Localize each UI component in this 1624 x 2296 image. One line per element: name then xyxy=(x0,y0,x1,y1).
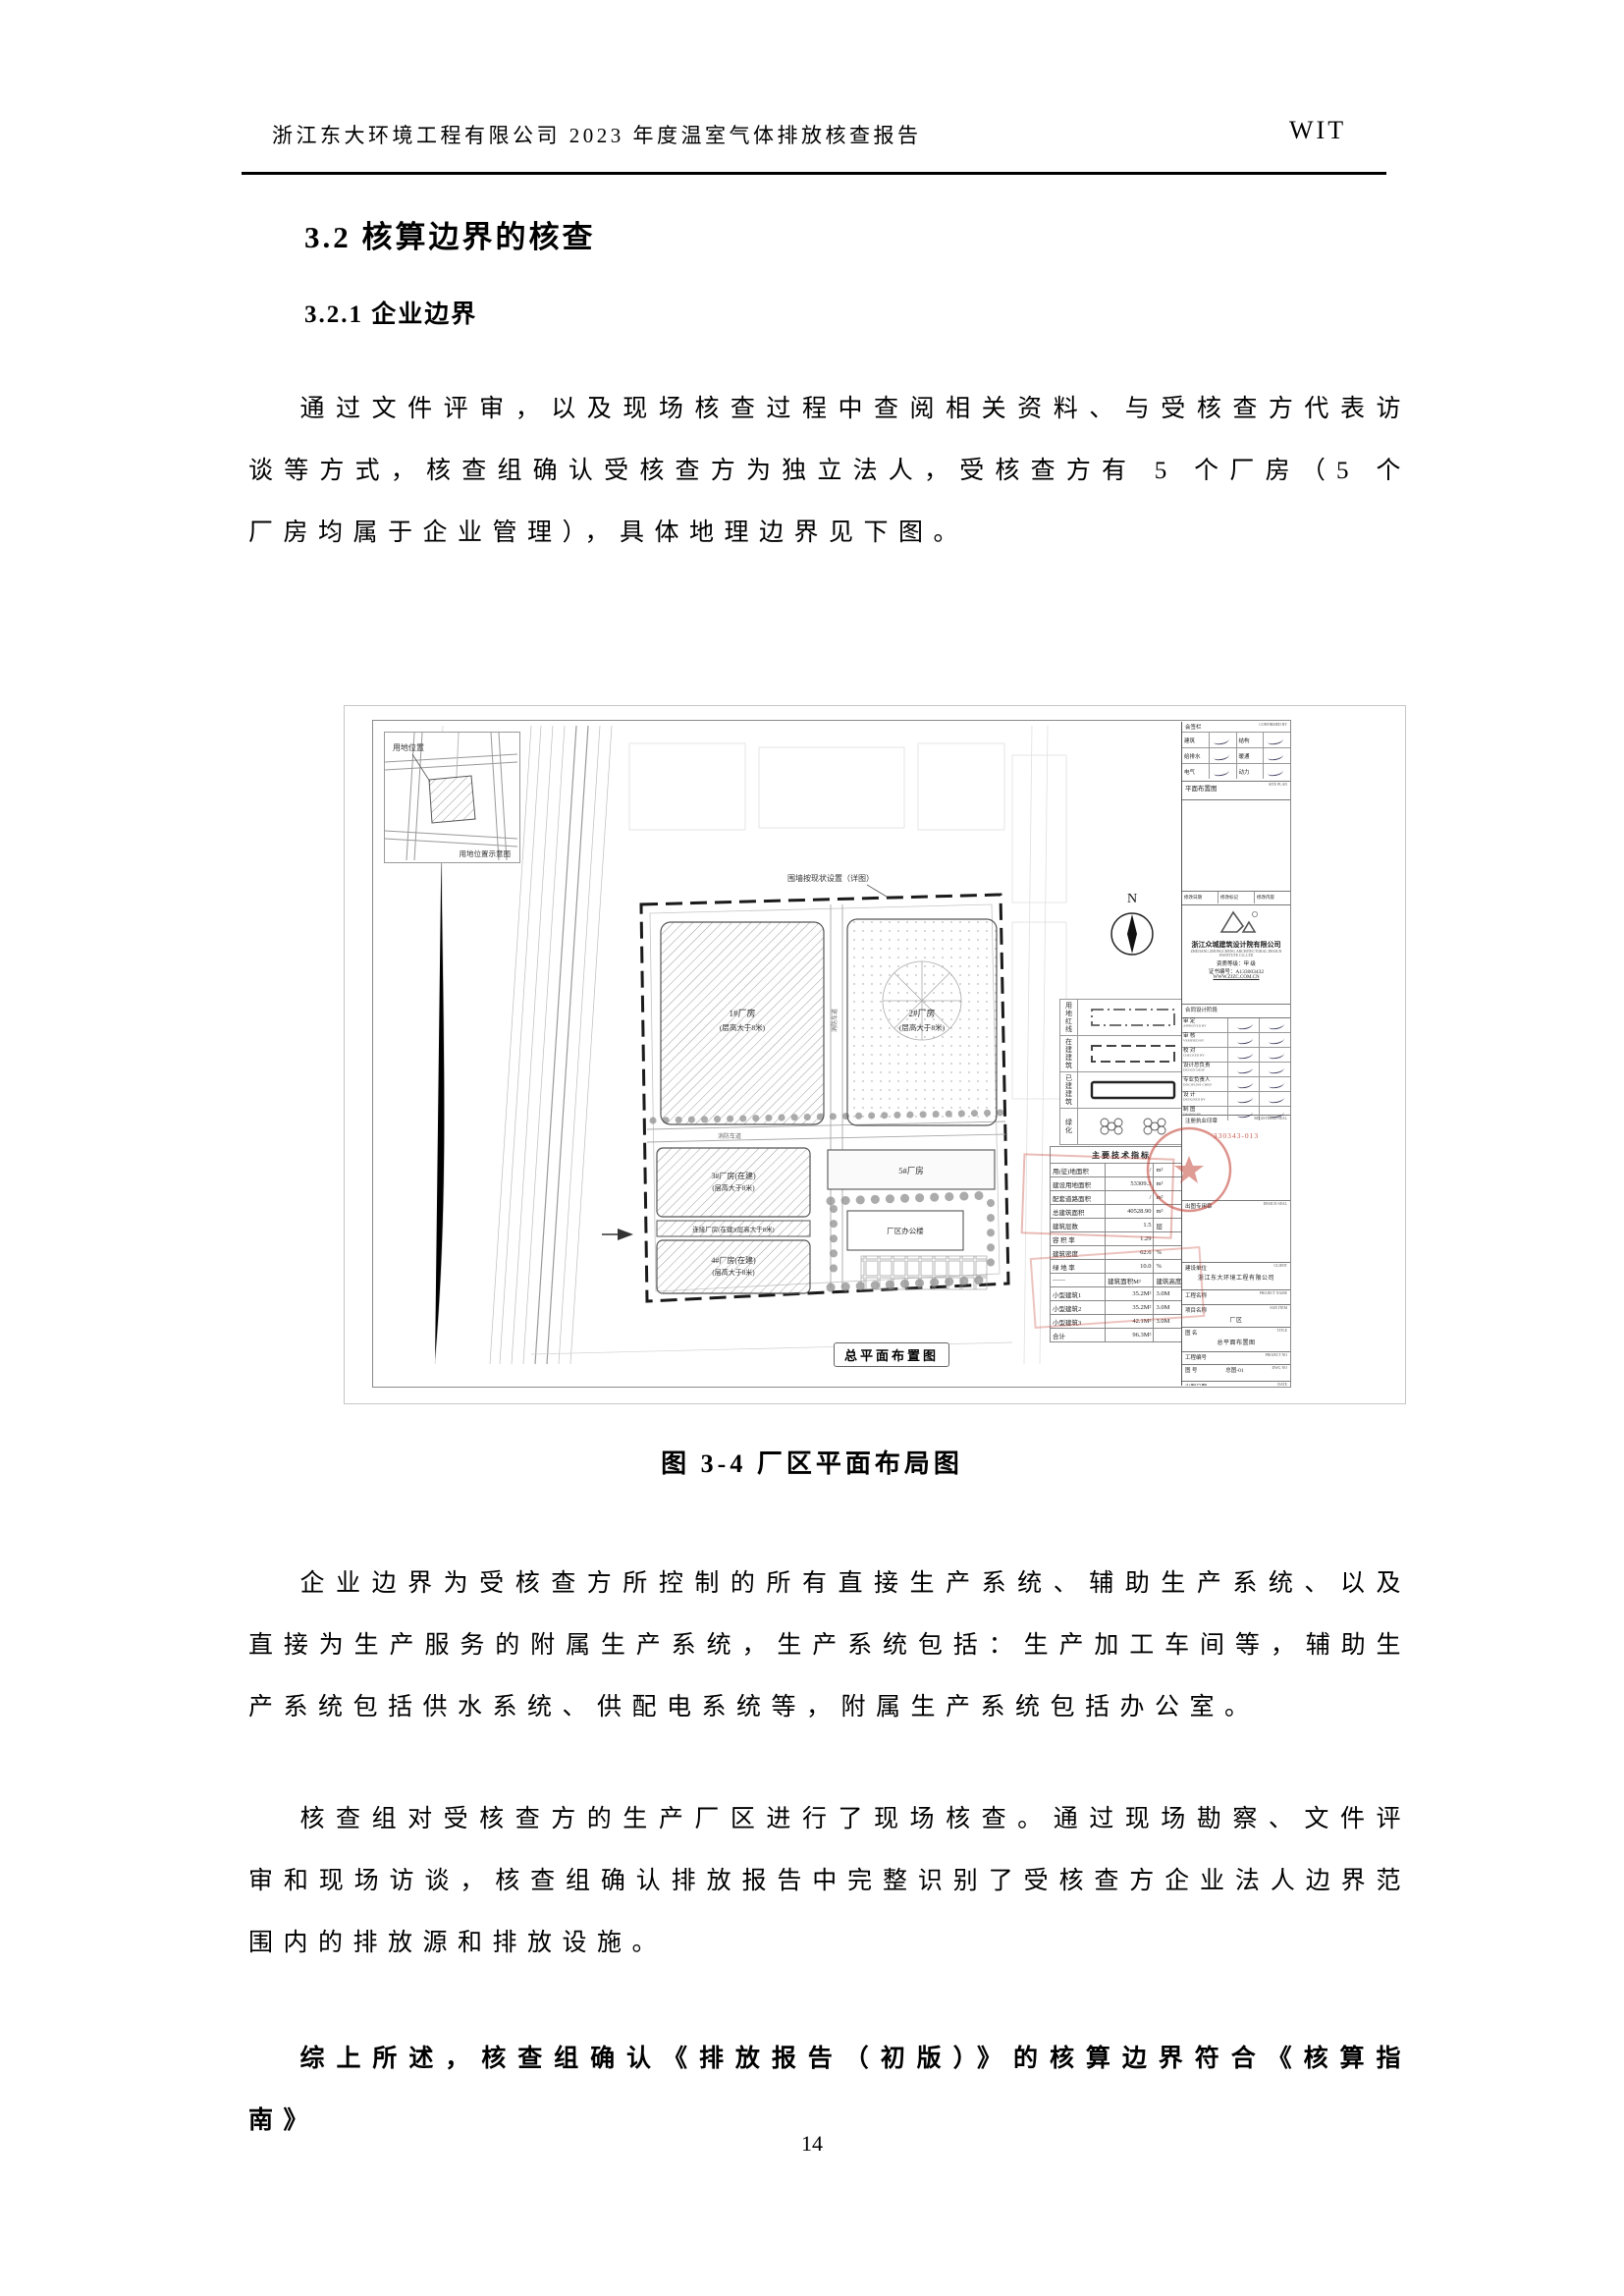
subsection-heading: 3.2.1 企业边界 xyxy=(304,295,477,330)
svg-text:(层高大于8米): (层高大于8米) xyxy=(899,1022,946,1032)
contract-stage-row: 合同设计阶段 xyxy=(1182,1005,1290,1018)
dashdot-boundary-symbol xyxy=(1088,1006,1178,1029)
parking-area xyxy=(861,1256,987,1289)
confirm-grid: 会签栏CONFIRMED BY 建筑结构 给排水暖通 电气动力 xyxy=(1182,722,1290,782)
north-arrow: N xyxy=(1103,889,1162,970)
svg-text:(层高大于8米): (层高大于8米) xyxy=(712,1268,755,1277)
inset-caption: 用地位置示意图 xyxy=(460,848,512,858)
svg-text:厂区办公楼: 厂区办公楼 xyxy=(887,1226,924,1235)
design-company-block: 浙江众城建筑设计院有限公司 ZHEJIANG ZHONGCHENG ARCHIT… xyxy=(1182,905,1290,1005)
header-rule xyxy=(242,172,1386,175)
project-no-row: 工程编号PROJECT NO xyxy=(1182,1352,1290,1365)
section-heading: 3.2 核算边界的核查 xyxy=(304,212,596,256)
figure-caption: 图 3-4 厂区平面布局图 xyxy=(0,1444,1624,1480)
signature-row: 设 计DESIGNED BY xyxy=(1182,1091,1290,1106)
solid-building-symbol xyxy=(1088,1078,1178,1102)
svg-text:5#厂房: 5#厂房 xyxy=(898,1166,924,1175)
fire-lane-label: 消防车道 xyxy=(718,1132,741,1140)
blank-cell xyxy=(1182,800,1290,892)
signature-row: 审 核VERIFIED BY xyxy=(1182,1032,1290,1047)
page-number: 14 xyxy=(0,2131,1624,2157)
north-label: N xyxy=(1127,892,1137,906)
drawing-caption: 总平面布置图 xyxy=(834,1342,949,1367)
building-4 xyxy=(657,1240,810,1293)
signature-row: 校 对CHECKED BY xyxy=(1182,1047,1290,1062)
svg-text:连接厂房(在建)(层高大于8米): 连接厂房(在建)(层高大于8米) xyxy=(692,1225,774,1233)
signature-row: 审 定APPROVED BY xyxy=(1182,1018,1290,1032)
signature-row: 专业负责人DISCIPLINE CHIEF xyxy=(1182,1076,1290,1091)
svg-text:(层高大于8米): (层高大于8米) xyxy=(712,1183,755,1192)
callout-leader xyxy=(867,885,887,897)
fire-lane-label-vertical: 消防车道 xyxy=(831,1009,839,1032)
design-seal-stamp xyxy=(1030,1246,1206,1329)
report-page: 浙江东大环境工程有限公司 2023 年度温室气体排放核查报告 WIT 3.2 核… xyxy=(0,0,1624,2296)
entrance-arrow xyxy=(602,1229,633,1240)
inset-map: 用地位置 用地位置示意图 xyxy=(384,732,520,863)
drawing-title-row: 图 名TITLE 总平面布置图 xyxy=(1182,1328,1290,1352)
inset-site-parcel xyxy=(429,776,475,823)
dashed-building-symbol xyxy=(1088,1042,1178,1066)
paragraph-2: 企业边界为受核查方所控制的所有直接生产系统、辅助生产系统、以及直接为生产服务的附… xyxy=(248,1553,1411,1738)
svg-text:3#厂房(在建): 3#厂房(在建) xyxy=(711,1171,756,1180)
revision-row: 修改日期 修改标记 修改内容 xyxy=(1182,892,1290,905)
inset-site-label: 用地位置 xyxy=(393,742,424,752)
wall-callout-text: 围墙按现状设置（详图） xyxy=(787,873,874,883)
header-logo-text: WIT xyxy=(1289,116,1346,145)
svg-text:2#厂房: 2#厂房 xyxy=(908,1008,935,1018)
signature-row: 设计总负责DESIGN DESP xyxy=(1182,1062,1290,1076)
signature-table: 审 定APPROVED BY 审 核VERIFIED BY 校 对CHECKED… xyxy=(1182,1018,1290,1116)
svg-text:(层高大于8米): (层高大于8米) xyxy=(720,1022,766,1032)
paragraph-3: 核查组对受核查方的生产厂区进行了现场核查。通过现场勘察、文件评审和现场访谈，核查… xyxy=(248,1788,1411,1974)
legend-row: 已建建筑 xyxy=(1060,1072,1188,1109)
red-rect-stamp xyxy=(1021,1153,1175,1238)
svg-text:4#厂房(在建): 4#厂房(在建) xyxy=(711,1255,756,1265)
date-row: 出图日期DATE xyxy=(1182,1382,1290,1386)
plan-type-row: 平面布置图SITE PLAN xyxy=(1182,782,1290,800)
site-plan-figure: 围墙按现状设置（详图） 1#厂房 (层高大于8米) 2#厂房 (层高大于8米) … xyxy=(344,705,1406,1404)
building-3 xyxy=(657,1148,810,1217)
svg-text:1#厂房: 1#厂房 xyxy=(729,1008,755,1018)
legend-row: 用地红线 xyxy=(1060,1000,1188,1036)
header-title: 浙江东大环境工程有限公司 2023 年度温室气体排放核查报告 xyxy=(272,120,922,149)
company-logo-icon xyxy=(1214,908,1259,938)
table-row: 合计96.3M² xyxy=(1051,1329,1193,1342)
inset-map-drawing: 用地位置 用地位置示意图 xyxy=(385,733,517,860)
drawing-no-row: 图 号总图-01DWG NO xyxy=(1182,1365,1290,1382)
legend-row: 在建建筑 xyxy=(1060,1036,1188,1072)
paragraph-1: 通过文件评审，以及现场核查过程中查阅相关资料、与受核查方代表访谈等方式，核查组确… xyxy=(248,378,1411,564)
